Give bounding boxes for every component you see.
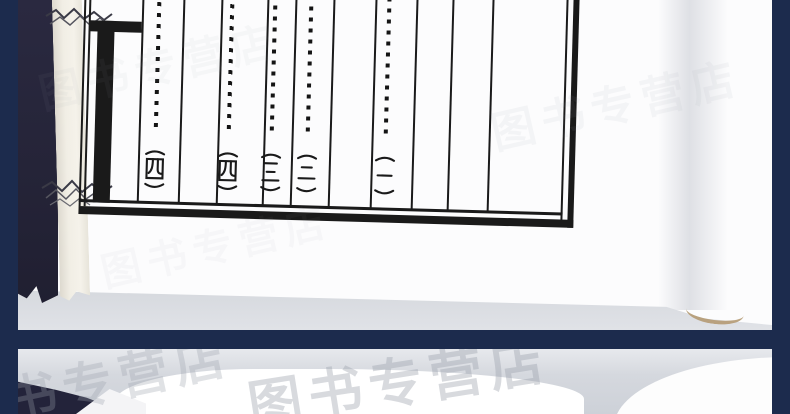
dotted-leader bbox=[270, 0, 278, 135]
contents-page-frame bbox=[78, 0, 580, 228]
column-rule-line bbox=[487, 0, 496, 211]
column-rule-line bbox=[411, 0, 420, 209]
page-number-三 bbox=[257, 149, 284, 196]
frame-border-right-outer bbox=[567, 0, 580, 228]
page-fold-shadow bbox=[658, 0, 728, 310]
dotted-leader bbox=[154, 0, 162, 132]
banxin-black-strip bbox=[93, 21, 115, 203]
column-rule-line bbox=[328, 0, 337, 207]
book-photo-bottom: 图书专营店 图书专营店 bbox=[18, 349, 772, 414]
page-number-四 bbox=[141, 146, 168, 193]
column-rule-line bbox=[178, 0, 187, 203]
product-page-background: { "colors": { "background_navy": "#1c2b4… bbox=[0, 0, 790, 414]
white-book-pages-left bbox=[114, 369, 584, 414]
book-photo-top: 图书专营店 图书专营店 图书专营店 bbox=[18, 0, 772, 330]
frame-border-bottom-outer bbox=[78, 206, 573, 228]
book-cover-spine bbox=[18, 0, 58, 306]
page-number-四 bbox=[214, 148, 241, 195]
column-rule-line bbox=[447, 0, 456, 210]
page-number-一 bbox=[371, 152, 398, 199]
dotted-leader bbox=[227, 0, 235, 134]
page-number-二 bbox=[293, 150, 320, 197]
dotted-leader bbox=[306, 0, 314, 136]
dotted-leader bbox=[384, 0, 392, 139]
